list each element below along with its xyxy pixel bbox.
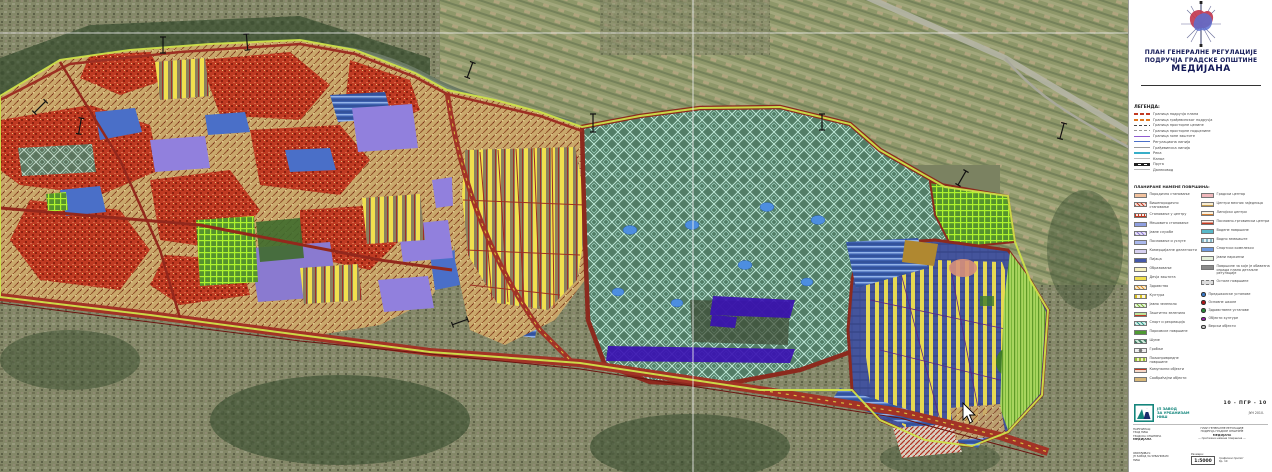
legend-dot-row: Основне школе <box>1201 300 1271 305</box>
legend-areas-right: Градски центар Центри месних заједница Л… <box>1201 193 1271 333</box>
legend-line-label: Пруга <box>1153 162 1164 166</box>
legend-area-label: Вишепородично становање <box>1150 202 1198 210</box>
legend-line-row: Канал <box>1134 157 1264 161</box>
legend-area-label: Остале површине <box>1217 280 1249 284</box>
legend-area-row: Комунални објекти <box>1134 368 1197 374</box>
areas-heading: ПЛАНИРАНЕ НАМЕНЕ ПОВРШИНА: <box>1134 184 1210 189</box>
legend-area-row: Пијаца <box>1134 258 1197 264</box>
legend-area-row: Мешовито становање <box>1134 222 1197 228</box>
legend-line-symbol <box>1134 169 1150 170</box>
legend-area-label: Становање у центру <box>1150 213 1187 217</box>
legend-dot-label: Предшколске установе <box>1209 293 1251 297</box>
legend-line-label: Канал <box>1153 157 1164 161</box>
zone-sport-small <box>18 144 96 176</box>
legend-area-row: Спортски комплекси <box>1201 247 1271 253</box>
legend-area-row: Водно земљиште <box>1201 238 1271 244</box>
legend-dot-row: Објекти културе <box>1201 317 1271 322</box>
legend-area-row: Култура <box>1134 294 1197 300</box>
legend-dot-symbol <box>1201 317 1206 322</box>
legend-line-row: Граница грађевинског подручја <box>1134 118 1264 122</box>
institute-logo <box>1134 404 1154 422</box>
legend-dot-label: Објекти културе <box>1209 317 1239 321</box>
legend-area-label: Центри месних заједница <box>1217 202 1263 206</box>
legend-area-swatch <box>1134 267 1147 272</box>
legend-area-row: Дечја заштита <box>1134 276 1197 282</box>
legend-line-label: Далековод <box>1153 168 1173 172</box>
legend-dot-symbol <box>1201 325 1206 330</box>
legend-dot-row: Верски објекти <box>1201 325 1271 330</box>
legend-area-label: Саобраћајни објекти <box>1150 377 1187 381</box>
legend-panel: ПЛАН ГЕНЕРАЛНЕ РЕГУЛАЦИЈЕ ПОДРУЧЈА ГРАДС… <box>1128 0 1272 472</box>
legend-area-row: Линијски центри <box>1201 211 1271 217</box>
legend-dot-row: Предшколске установе <box>1201 292 1271 297</box>
legend-area-swatch <box>1134 339 1147 344</box>
title-divider <box>1141 85 1261 86</box>
plan-name-block: ПЛАН ГЕНЕРАЛНЕ РЕГУЛАЦИЈЕ ПОДРУЧЈА ГРАДС… <box>1190 427 1254 440</box>
legend-line-label: Граница зоне заштите <box>1153 134 1195 138</box>
legend-line-row: Река <box>1134 151 1264 155</box>
legend-area-row: Гробље <box>1134 348 1197 354</box>
legend-line-label: Граница грађевинског подручја <box>1153 118 1212 122</box>
legend-heading: ЛЕГЕНДА: <box>1134 105 1160 110</box>
legend-area-row: Заштитно зеленило <box>1134 312 1197 318</box>
institute-name: ЈП ЗАВОД ЗА УРБАНИЗАМ НИШ <box>1157 407 1189 420</box>
legend-area-row: Образовање <box>1134 267 1197 273</box>
legend-area-swatch <box>1134 231 1147 236</box>
legend-area-swatch <box>1134 213 1147 218</box>
map-canvas[interactable] <box>0 0 1272 472</box>
legend-area-label: Комерцијалне делатности <box>1150 249 1197 253</box>
legend-dot-list: Предшколске установе Основне школе Здрав… <box>1201 292 1271 329</box>
legend-area-row: Саобраћајни објекти <box>1134 377 1197 383</box>
legend-area-row: Пословно-трговински центри <box>1201 220 1271 226</box>
legend-dot-label: Здравствене установе <box>1209 309 1249 313</box>
legend-area-row: Остале површине <box>1201 280 1271 286</box>
legend-area-label: Шуме <box>1150 339 1160 343</box>
legend-area-swatch <box>1134 348 1147 353</box>
legend-area-row: Јавни паркинзи <box>1201 256 1271 262</box>
legend-area-label: Образовање <box>1150 267 1172 271</box>
legend-area-swatch <box>1134 276 1147 281</box>
legend-area-swatch <box>1134 240 1147 245</box>
legend-area-label: Површине за које је обавезна израда план… <box>1217 265 1272 276</box>
legend-area-label: Култура <box>1150 294 1165 298</box>
legend-line-row: Граница зоне заштите <box>1134 134 1264 138</box>
legend-area-swatch <box>1201 202 1214 207</box>
legend-line-row: Грађевинска линија <box>1134 146 1264 150</box>
legend-line-label: Граница просторне целине <box>1153 123 1204 127</box>
legend-dot-symbol <box>1201 308 1206 313</box>
legend-line-symbol <box>1134 147 1150 148</box>
legend-line-row: Граница подручја плана <box>1134 112 1264 116</box>
legend-area-swatch <box>1134 285 1147 290</box>
legend-dot-label: Основне школе <box>1209 301 1237 305</box>
drawing-date: ЈУН 2010. <box>1249 411 1264 415</box>
legend-line-label: Река <box>1153 151 1162 155</box>
legend-area-label: Линијски центри <box>1217 211 1247 215</box>
legend-area-swatch <box>1134 303 1147 308</box>
legend-area-swatch <box>1201 280 1214 285</box>
client-block: НАРУЧИЛАЦ: ГРАД НИШ ГРАДСКА ОПШТИНА МЕДИ… <box>1133 428 1187 441</box>
legend-area-swatch <box>1201 220 1214 225</box>
legend-line-symbol <box>1134 125 1150 126</box>
legend-area-row: Пољопривредне површине <box>1134 357 1197 365</box>
legend-area-label: Здравство <box>1150 285 1169 289</box>
legend-area-label: Градски центар <box>1217 193 1246 197</box>
drawing-code: 10 - ПГР - 10 <box>1223 401 1267 406</box>
legend-area-swatch <box>1134 222 1147 227</box>
legend-area-swatch <box>1201 211 1214 216</box>
legend-line-row: Граница просторне целине <box>1134 123 1264 127</box>
legend-area-row: Шуме <box>1134 339 1197 345</box>
legend-area-swatch <box>1134 294 1147 299</box>
legend-area-label: Водно земљиште <box>1217 238 1248 242</box>
legend-area-row: Становање у центру <box>1134 213 1197 219</box>
legend-line-symbol <box>1134 152 1150 154</box>
legend-area-row: Здравство <box>1134 285 1197 291</box>
legend-area-swatch <box>1134 202 1147 207</box>
legend-area-row: Спорт и рекреација <box>1134 321 1197 327</box>
legend-area-row: Водене површине <box>1201 229 1271 235</box>
legend-area-label: Јавни паркинзи <box>1217 256 1245 260</box>
legend-area-label: Пословно-трговински центри <box>1217 220 1270 224</box>
legend-area-swatch <box>1201 193 1214 198</box>
legend-area-label: Водене површине <box>1217 229 1249 233</box>
plan-viewer: ПЛАН ГЕНЕРАЛНЕ РЕГУЛАЦИЈЕ ПОДРУЧЈА ГРАДС… <box>0 0 1272 472</box>
legend-dot-symbol <box>1201 292 1206 297</box>
author-block: ОБРАЂИВАЧ: ЈП ЗАВОД ЗА УРБАНИЗАМ НИШ <box>1133 452 1181 462</box>
legend-area-label: Пијаца <box>1150 258 1162 262</box>
scale-value: 1:5000 <box>1191 456 1215 465</box>
legend-area-swatch <box>1134 330 1147 335</box>
legend-line-symbol <box>1134 113 1150 115</box>
legend-line-symbol <box>1134 130 1150 131</box>
titleblock-divider <box>1133 424 1268 425</box>
legend-area-swatch <box>1201 256 1214 261</box>
legend-area-swatch <box>1134 193 1147 198</box>
legend-area-label: Мешовито становање <box>1150 222 1189 226</box>
legend-area-row: Комерцијалне делатности <box>1134 249 1197 255</box>
legend-areas-left: Породично становање Вишепородично станов… <box>1134 193 1197 386</box>
legend-line-symbol <box>1134 136 1150 137</box>
legend-area-label: Јавне службе <box>1150 231 1174 235</box>
legend-area-label: Пољопривредне површине <box>1150 357 1198 365</box>
legend-area-row: Центри месних заједница <box>1201 202 1271 208</box>
legend-area-row: Породично становање <box>1134 193 1197 199</box>
legend-area-swatch <box>1134 377 1147 382</box>
legend-line-row: Регулациона линија <box>1134 140 1264 144</box>
legend-line-label: Граница просторне подцелине <box>1153 129 1211 133</box>
legend-area-row: Вишепородично становање <box>1134 202 1197 210</box>
legend-area-label: Заштитно зеленило <box>1150 312 1186 316</box>
institute-logo-block: ЈП ЗАВОД ЗА УРБАНИЗАМ НИШ <box>1134 404 1189 422</box>
legend-line-label: Регулациона линија <box>1153 140 1190 144</box>
legend-line-row: Граница просторне подцелине <box>1134 129 1264 133</box>
legend-area-row: Пословање и услуге <box>1134 240 1197 246</box>
legend-line-row: Далековод <box>1134 168 1264 172</box>
legend-area-swatch <box>1201 265 1214 270</box>
legend-area-label: Пословање и услуге <box>1150 240 1186 244</box>
legend-area-row: Градски центар <box>1201 193 1271 199</box>
legend-area-row: Парковске површине <box>1134 330 1197 336</box>
legend-area-swatch <box>1201 229 1214 234</box>
legend-area-label: Спортски комплекси <box>1217 247 1254 251</box>
legend-area-label: Јавно зеленило <box>1150 303 1177 307</box>
legend-area-row: Површине за које је обавезна израда план… <box>1201 265 1271 276</box>
legend-area-swatch <box>1134 249 1147 254</box>
legend-area-label: Парковске површине <box>1150 330 1188 334</box>
legend-area-swatch <box>1134 312 1147 317</box>
legend-area-swatch <box>1134 368 1147 373</box>
legend-area-label: Породично становање <box>1150 193 1190 197</box>
legend-line-symbol <box>1134 119 1150 121</box>
legend-area-label: Спорт и рекреација <box>1150 321 1185 325</box>
legend-line-symbol <box>1134 163 1150 166</box>
legend-line-label: Грађевинска линија <box>1153 146 1190 150</box>
legend-area-swatch <box>1201 247 1214 252</box>
legend-area-row: Јавно зеленило <box>1134 303 1197 309</box>
legend-area-swatch <box>1134 258 1147 263</box>
legend-area-swatch <box>1201 238 1214 243</box>
sheet-note: графички прилог бр. 10 <box>1219 457 1259 464</box>
legend-area-label: Гробље <box>1150 348 1164 352</box>
legend-line-symbol <box>1134 158 1150 159</box>
legend-area-label: Комунални објекти <box>1150 368 1184 372</box>
legend-line-list: Граница подручја плана Граница грађевинс… <box>1134 112 1264 174</box>
legend-area-row: Јавне службе <box>1134 231 1197 237</box>
legend-line-label: Граница подручја плана <box>1153 112 1198 116</box>
legend-dot-label: Верски објекти <box>1209 325 1236 329</box>
legend-dot-row: Здравствене установе <box>1201 308 1271 313</box>
legend-dot-symbol <box>1201 300 1206 305</box>
plan-title: ПЛАН ГЕНЕРАЛНЕ РЕГУЛАЦИЈЕ ПОДРУЧЈА ГРАДС… <box>1132 49 1270 75</box>
legend-area-swatch <box>1134 357 1147 362</box>
legend-area-swatch <box>1134 321 1147 326</box>
compass-rose <box>1166 1 1236 47</box>
legend-line-row: Пруга <box>1134 162 1264 166</box>
legend-line-symbol <box>1134 141 1150 142</box>
legend-area-label: Дечја заштита <box>1150 276 1176 280</box>
